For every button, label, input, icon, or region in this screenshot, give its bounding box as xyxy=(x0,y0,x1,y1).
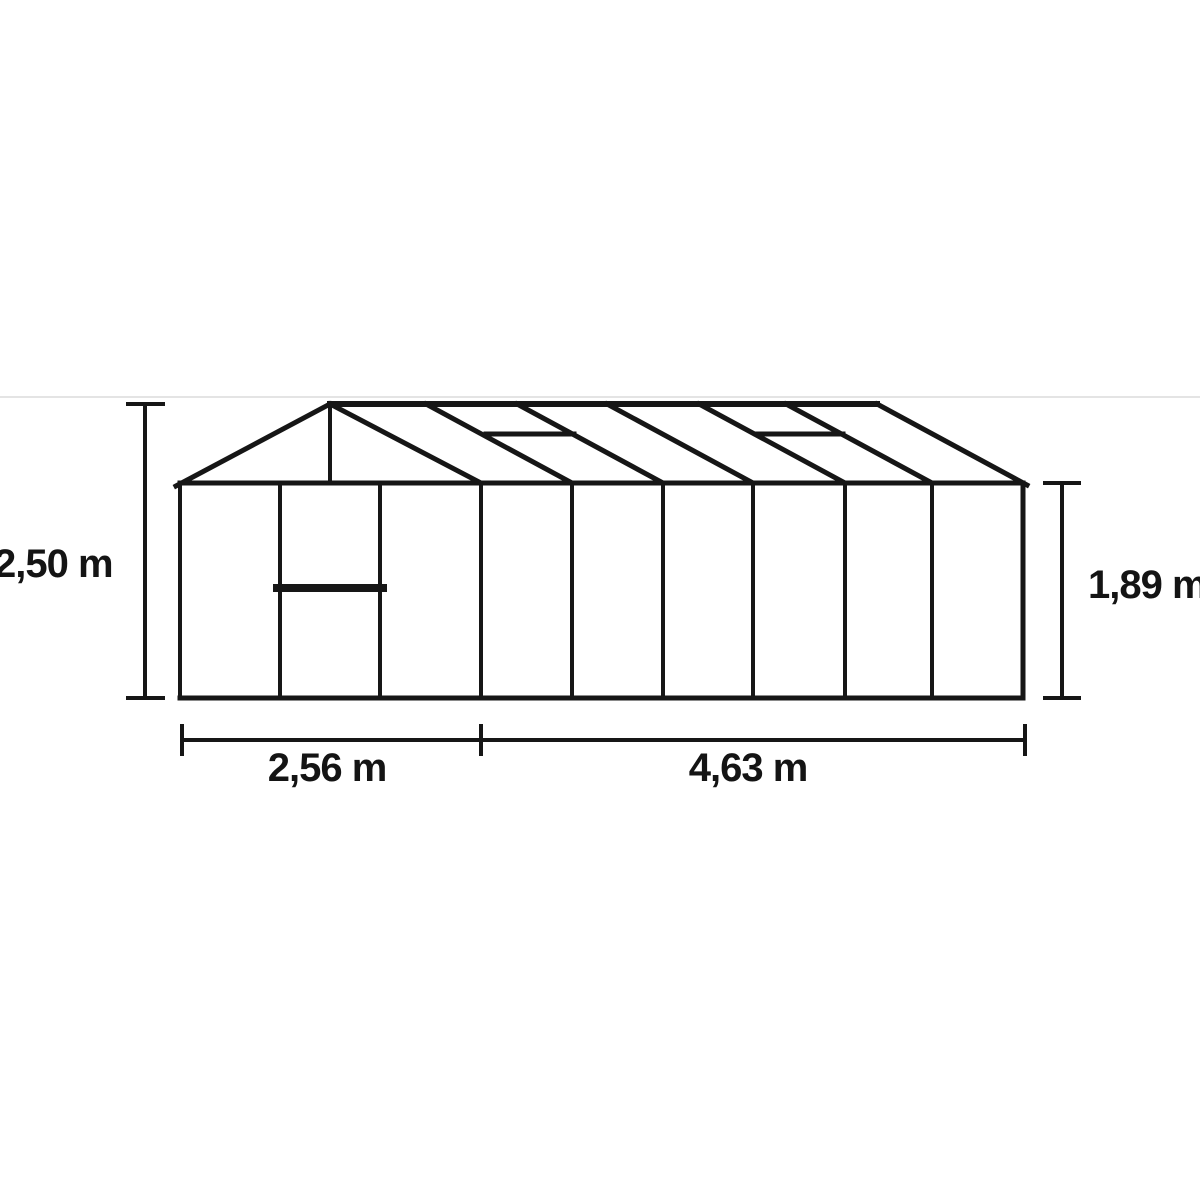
roof-glazing-bar-4 xyxy=(699,404,845,483)
greenhouse-dimension-drawing: 2,50 m 1,89 m 2,56 m 4,63 m xyxy=(0,0,1200,1200)
roof-glazing-bar-2 xyxy=(517,404,663,483)
roof-glazing-bar-5 xyxy=(786,404,932,483)
dimension-label-front-width: 2,56 m xyxy=(268,748,387,788)
gable-right-roof-slope xyxy=(330,404,481,483)
roof-glazing-bar-3 xyxy=(607,404,753,483)
dimension-label-total-height: 2,50 m xyxy=(0,544,113,584)
dimension-label-side-length: 4,63 m xyxy=(689,748,808,788)
dimension-label-side-height: 1,89 m xyxy=(1088,565,1200,605)
roof-end-slope xyxy=(877,404,1027,485)
greenhouse-diagram xyxy=(0,0,1200,1200)
roof-glazing-bar-1 xyxy=(426,404,572,483)
gable-left-roof-slope xyxy=(176,404,330,486)
